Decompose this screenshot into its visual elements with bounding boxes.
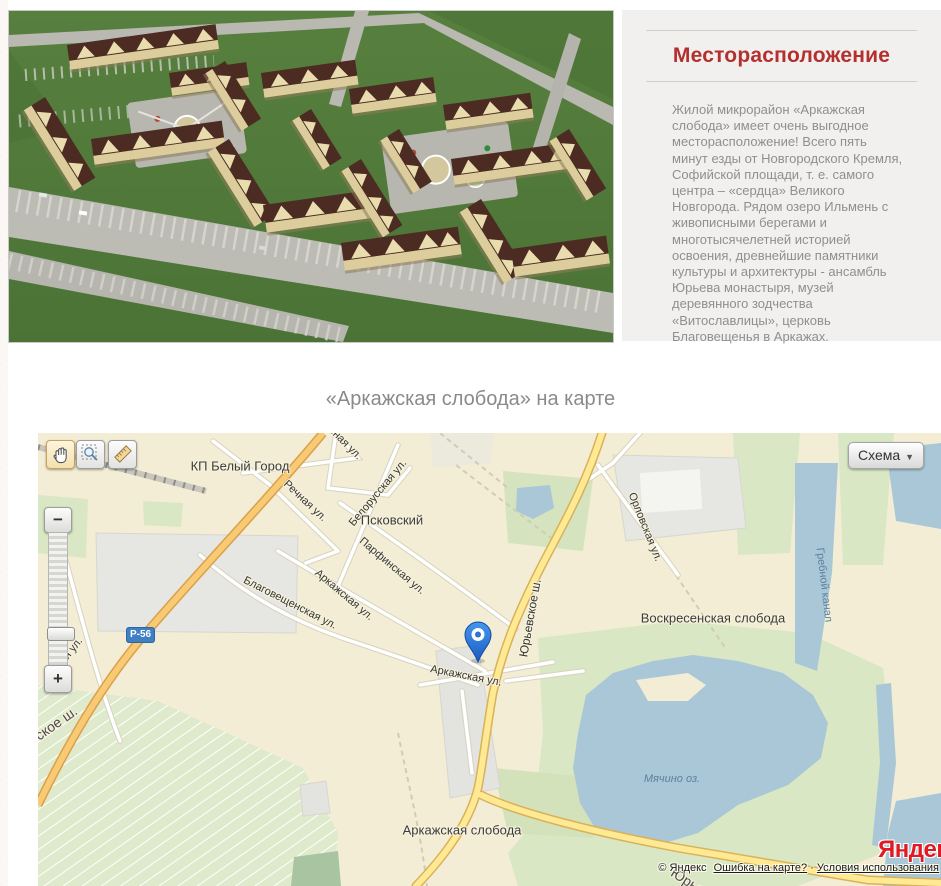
- chevron-down-icon: ▼: [905, 452, 914, 462]
- divider: [646, 30, 917, 31]
- separator-dot: ·: [810, 862, 814, 874]
- zoom-out-button[interactable]: −: [44, 507, 72, 533]
- zoom-select-tool-button[interactable]: [76, 440, 105, 469]
- map-pin[interactable]: [464, 621, 492, 665]
- ruler-icon: [113, 444, 133, 464]
- zoom-slider-track[interactable]: [48, 532, 68, 666]
- info-panel: Месторасположение Жилой микрорайон «Арка…: [622, 10, 941, 341]
- zoom-in-button[interactable]: +: [44, 665, 72, 693]
- magnifier-icon: [81, 444, 100, 463]
- map-label-arkazhskaya-sloboda: Аркажская слобода: [403, 823, 522, 838]
- yandex-map[interactable]: КП Белый Город рная ул. Речная ул. Белор…: [38, 433, 941, 886]
- hand-icon: [52, 444, 70, 464]
- pin-icon: [464, 621, 492, 665]
- render-image: [8, 10, 614, 343]
- divider: [646, 81, 917, 82]
- zoom-slider-handle[interactable]: [47, 627, 75, 641]
- map-label-voskresenskaya-sloboda: Воскресенская слобода: [641, 611, 785, 626]
- map-attribution: © Яндекс Ошибка на карте? · Условия испо…: [658, 862, 939, 874]
- pan-tool-button[interactable]: [46, 440, 75, 469]
- location-paragraph: Жилой микрорайон «Аркажская слобода» име…: [672, 102, 905, 345]
- location-heading: Месторасположение: [632, 44, 931, 68]
- render-illustration: [9, 11, 613, 342]
- map-label-kp-bely-gorod: КП Белый Город: [191, 459, 290, 474]
- map-label-pskovskiy: Псковский: [361, 513, 423, 528]
- yandex-logo[interactable]: Яндекс: [878, 836, 941, 864]
- copyright-text: © Яндекс: [658, 862, 706, 874]
- map-section-title: «Аркажская слобода» на карте: [0, 388, 941, 411]
- report-error-link[interactable]: Ошибка на карте?: [714, 862, 808, 874]
- road-badge-p56: Р-56: [126, 627, 155, 643]
- layer-select-button[interactable]: Схема▼: [848, 442, 924, 469]
- terms-link[interactable]: Условия использования: [817, 862, 939, 874]
- map-label-myachino-oz: Мячино оз.: [644, 773, 700, 785]
- measure-tool-button[interactable]: [108, 440, 137, 469]
- layer-button-label: Схема: [858, 447, 900, 463]
- page: Месторасположение Жилой микрорайон «Арка…: [0, 0, 941, 886]
